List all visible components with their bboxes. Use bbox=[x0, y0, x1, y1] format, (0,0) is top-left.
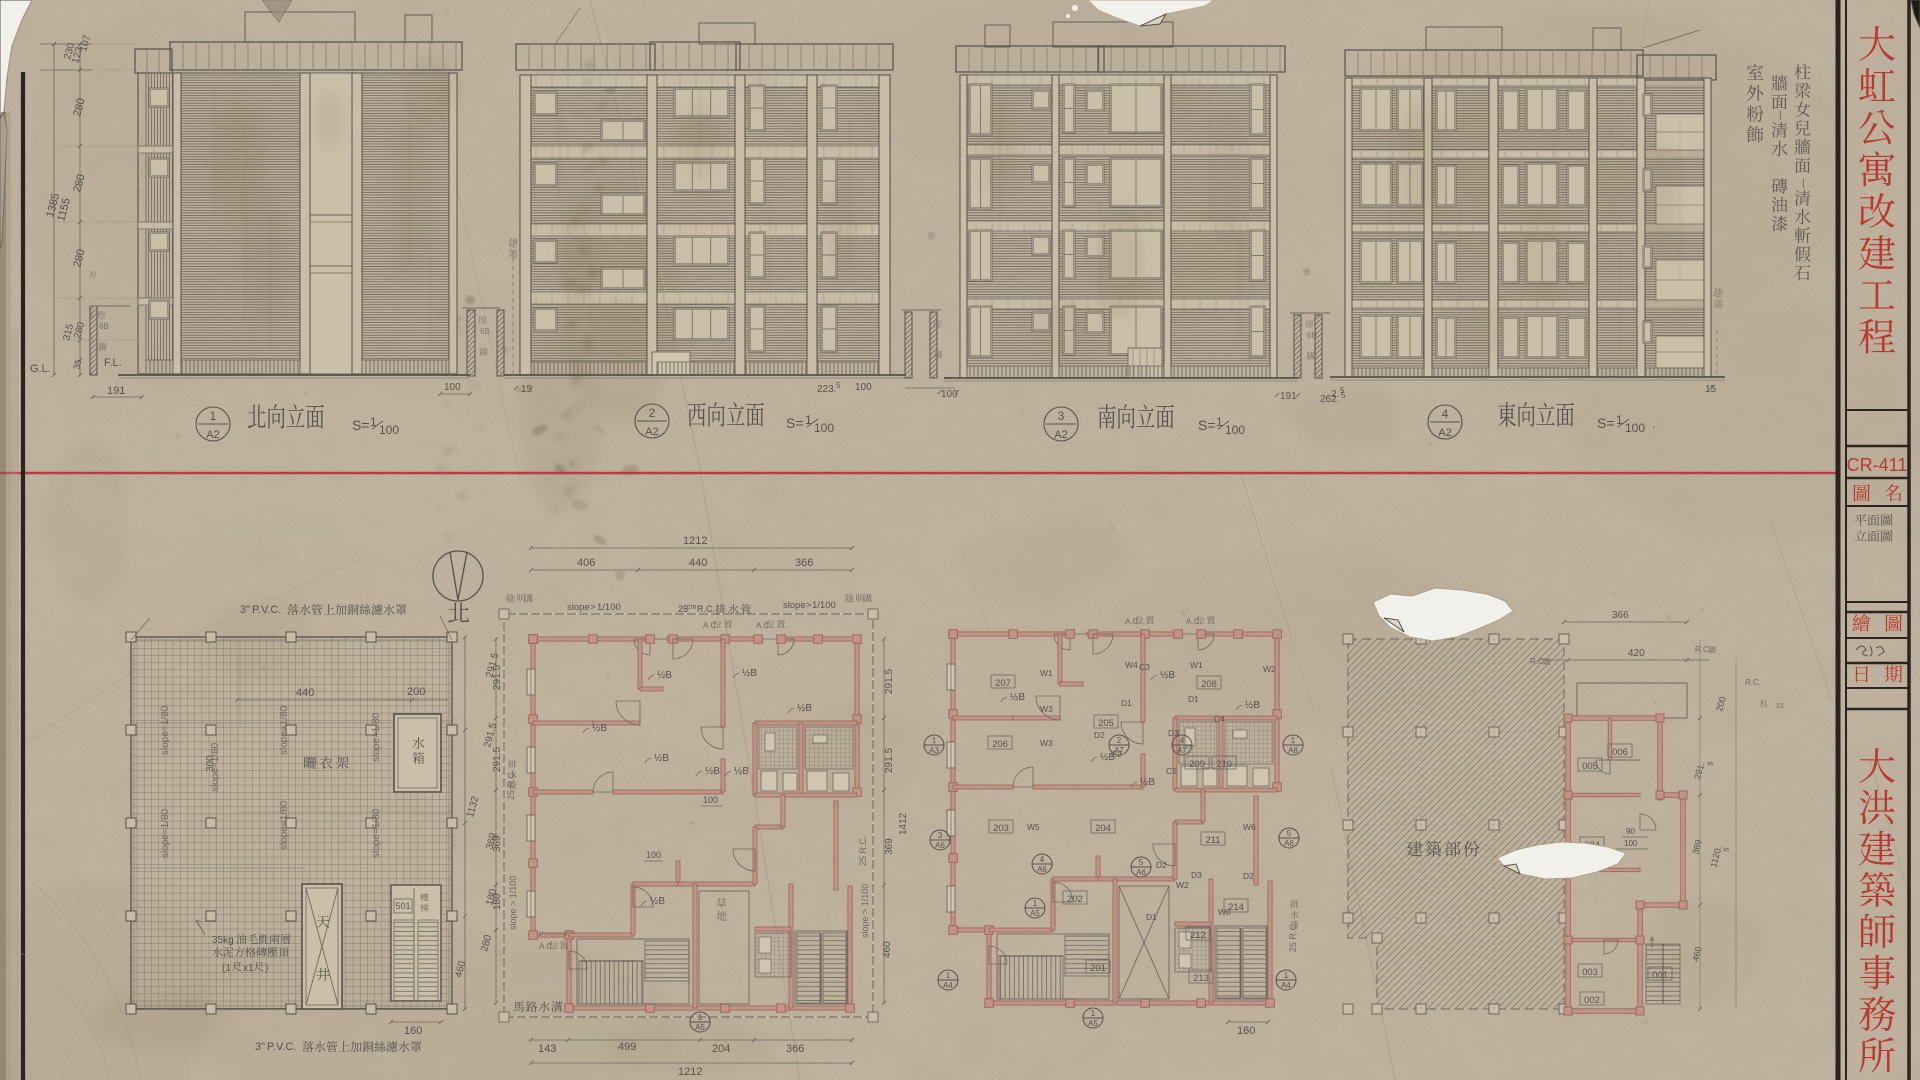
svg-text:1: 1 bbox=[1291, 736, 1296, 745]
svg-text:205: 205 bbox=[1098, 718, 1114, 729]
svg-text:A6: A6 bbox=[1284, 839, 1294, 848]
svg-text:15: 15 bbox=[1776, 703, 1784, 710]
svg-text:W2: W2 bbox=[1263, 664, 1276, 674]
svg-text:S=: S= bbox=[1198, 417, 1216, 433]
svg-text:100: 100 bbox=[814, 421, 834, 435]
svg-text:369: 369 bbox=[884, 838, 895, 855]
svg-text:A4: A4 bbox=[1281, 981, 1291, 990]
svg-text:D2: D2 bbox=[1156, 860, 1167, 870]
svg-text:2: 2 bbox=[1117, 736, 1122, 745]
svg-text:W5: W5 bbox=[1027, 822, 1040, 832]
svg-text:90: 90 bbox=[1626, 827, 1635, 836]
svg-text:1: 1 bbox=[210, 409, 217, 423]
svg-text:slope > 1/100: slope > 1/100 bbox=[508, 876, 518, 930]
svg-text:D3: D3 bbox=[1191, 870, 1202, 880]
svg-text:209: 209 bbox=[1189, 759, 1205, 770]
svg-text:>: > bbox=[590, 602, 596, 613]
svg-text:1/100: 1/100 bbox=[597, 602, 621, 613]
svg-text:C4: C4 bbox=[1214, 714, 1225, 724]
svg-text:A.C.: A.C. bbox=[756, 621, 772, 630]
svg-text:W8: W8 bbox=[1218, 907, 1231, 917]
svg-text:½B: ½B bbox=[650, 896, 665, 907]
svg-text:G.L.: G.L. bbox=[30, 363, 51, 375]
svg-text:002: 002 bbox=[1584, 995, 1600, 1006]
svg-text:1212: 1212 bbox=[683, 535, 707, 547]
svg-text:1: 1 bbox=[805, 413, 812, 427]
svg-text:100: 100 bbox=[941, 389, 958, 400]
svg-text:4: 4 bbox=[1442, 407, 1449, 421]
svg-text:A6: A6 bbox=[1037, 865, 1047, 874]
svg-text:D2: D2 bbox=[1243, 871, 1254, 881]
svg-text:½B: ½B bbox=[1010, 692, 1025, 703]
svg-text:A.C.: A.C. bbox=[539, 942, 555, 951]
svg-text:100: 100 bbox=[646, 850, 661, 860]
svg-text:½B: ½B bbox=[1140, 777, 1155, 788]
svg-text:5: 5 bbox=[1139, 858, 1144, 867]
svg-text:100: 100 bbox=[379, 423, 399, 437]
svg-text:25 R.C.: 25 R.C. bbox=[858, 835, 868, 866]
svg-text:213: 213 bbox=[1193, 973, 1209, 984]
svg-text:212: 212 bbox=[1190, 930, 1206, 941]
svg-text:A.C.: A.C. bbox=[1186, 617, 1202, 626]
svg-text:cm: cm bbox=[687, 604, 697, 611]
svg-text:A5: A5 bbox=[695, 1023, 705, 1032]
svg-text:D1: D1 bbox=[1188, 694, 1199, 704]
svg-text:291.5: 291.5 bbox=[492, 747, 503, 772]
svg-text:003: 003 bbox=[1582, 967, 1598, 978]
svg-text:½B: ½B bbox=[742, 668, 757, 679]
svg-text:6B: 6B bbox=[1307, 331, 1317, 340]
svg-text:1: 1 bbox=[1216, 415, 1223, 429]
svg-text:): ) bbox=[265, 963, 268, 974]
svg-text:|: | bbox=[1802, 178, 1805, 189]
svg-text:3": 3" bbox=[240, 604, 250, 616]
svg-text:203: 203 bbox=[993, 823, 1009, 834]
svg-text:366: 366 bbox=[786, 1043, 804, 1055]
svg-text:5: 5 bbox=[1287, 829, 1292, 838]
svg-text:1: 1 bbox=[1284, 971, 1289, 980]
svg-text:½B: ½B bbox=[705, 766, 720, 777]
svg-text:160: 160 bbox=[1237, 1025, 1255, 1037]
svg-text:P.V.C.: P.V.C. bbox=[267, 1041, 296, 1053]
svg-text:1: 1 bbox=[1616, 413, 1623, 427]
svg-text:35kg: 35kg bbox=[212, 935, 234, 946]
svg-text:A3: A3 bbox=[929, 746, 939, 755]
svg-text:291.5: 291.5 bbox=[884, 748, 895, 773]
svg-text:slope=1/80: slope=1/80 bbox=[371, 712, 382, 762]
svg-text:D1: D1 bbox=[1121, 698, 1132, 708]
svg-text:191: 191 bbox=[1280, 391, 1297, 402]
svg-text:366: 366 bbox=[795, 557, 813, 569]
svg-text:201: 201 bbox=[1090, 963, 1106, 974]
svg-text:3: 3 bbox=[1058, 409, 1065, 423]
svg-text:5: 5 bbox=[836, 381, 841, 390]
svg-text:A6: A6 bbox=[1136, 868, 1146, 877]
svg-text:R.C.: R.C. bbox=[1695, 645, 1711, 654]
svg-text:F.L.: F.L. bbox=[104, 357, 122, 369]
svg-text:W6: W6 bbox=[1243, 822, 1256, 832]
svg-text:½B: ½B bbox=[654, 753, 669, 764]
svg-text:slope=1/80: slope=1/80 bbox=[371, 808, 382, 858]
svg-text:A4: A4 bbox=[943, 981, 953, 990]
svg-text:005: 005 bbox=[1582, 761, 1598, 772]
svg-text:208: 208 bbox=[1201, 679, 1217, 690]
svg-text:369: 369 bbox=[492, 835, 503, 852]
svg-text:W4: W4 bbox=[1125, 660, 1138, 670]
svg-text:100: 100 bbox=[1625, 421, 1645, 435]
svg-text:191: 191 bbox=[107, 385, 125, 397]
svg-text:2: 2 bbox=[649, 406, 656, 420]
svg-text:A2: A2 bbox=[1438, 427, 1451, 439]
svg-text:A7: A7 bbox=[1114, 746, 1124, 755]
svg-text:211: 211 bbox=[1205, 835, 1220, 846]
svg-text:W1: W1 bbox=[1040, 668, 1053, 678]
svg-text:499: 499 bbox=[618, 1041, 636, 1053]
svg-text:2.: 2. bbox=[1331, 389, 1339, 400]
svg-text:440: 440 bbox=[689, 557, 707, 569]
svg-text:x1: x1 bbox=[243, 963, 254, 974]
svg-text:1: 1 bbox=[1033, 899, 1038, 908]
svg-text:C3: C3 bbox=[1139, 662, 1150, 672]
svg-text:slope=1/80: slope=1/80 bbox=[160, 808, 171, 858]
svg-text:300: 300 bbox=[205, 755, 216, 772]
svg-text:440: 440 bbox=[296, 687, 314, 699]
svg-text:A2: A2 bbox=[1054, 429, 1067, 441]
svg-text:½B: ½B bbox=[1160, 670, 1175, 681]
svg-text:S=: S= bbox=[1597, 415, 1615, 431]
svg-text:½B: ½B bbox=[657, 670, 672, 681]
svg-text:100: 100 bbox=[1225, 423, 1245, 437]
svg-text:slope=1/80: slope=1/80 bbox=[160, 705, 171, 755]
svg-text:4: 4 bbox=[1040, 855, 1045, 864]
svg-text:366: 366 bbox=[1612, 610, 1629, 621]
svg-text:180: 180 bbox=[492, 893, 503, 910]
svg-text:½B: ½B bbox=[734, 766, 749, 777]
svg-text:½B: ½B bbox=[797, 703, 812, 714]
svg-text:P.V.C.: P.V.C. bbox=[252, 604, 281, 616]
svg-text:W1: W1 bbox=[1190, 660, 1203, 670]
svg-text:291.5: 291.5 bbox=[492, 665, 503, 690]
svg-text:143: 143 bbox=[538, 1043, 556, 1055]
svg-text:W3: W3 bbox=[1040, 704, 1053, 714]
svg-text:1: 1 bbox=[932, 736, 937, 745]
svg-text:1212: 1212 bbox=[678, 1066, 702, 1078]
svg-text:291.5: 291.5 bbox=[884, 669, 895, 694]
svg-text:420: 420 bbox=[1628, 648, 1645, 659]
svg-text:6B: 6B bbox=[99, 322, 109, 331]
svg-text:1/100: 1/100 bbox=[812, 600, 836, 611]
svg-text:206: 206 bbox=[992, 739, 1008, 750]
svg-text:C5: C5 bbox=[1166, 766, 1177, 776]
svg-text:R.C.: R.C. bbox=[697, 604, 715, 614]
svg-text:slope: slope bbox=[783, 600, 806, 611]
svg-text:4: 4 bbox=[1180, 736, 1185, 745]
svg-text:A7: A7 bbox=[1177, 746, 1187, 755]
svg-text:15: 15 bbox=[521, 384, 533, 395]
svg-text:006: 006 bbox=[1612, 747, 1628, 758]
svg-text:100: 100 bbox=[703, 795, 718, 805]
svg-text:R.C.: R.C. bbox=[1530, 657, 1546, 666]
svg-text:1: 1 bbox=[698, 1013, 703, 1022]
svg-text:A5: A5 bbox=[1088, 1019, 1098, 1028]
svg-text:1: 1 bbox=[370, 415, 377, 429]
svg-text:1412: 1412 bbox=[898, 812, 909, 835]
svg-text:204: 204 bbox=[1095, 823, 1111, 834]
svg-text:A.C.: A.C. bbox=[703, 621, 719, 630]
svg-text:1: 1 bbox=[946, 971, 951, 980]
svg-text:slope=1/80: slope=1/80 bbox=[279, 800, 290, 850]
svg-text:A6: A6 bbox=[935, 841, 945, 850]
svg-text:1: 1 bbox=[1091, 1009, 1096, 1018]
svg-text:501: 501 bbox=[395, 901, 410, 911]
svg-text:D1: D1 bbox=[1146, 912, 1157, 922]
svg-text:A5: A5 bbox=[1030, 909, 1040, 918]
svg-text:slope > 1/100: slope > 1/100 bbox=[860, 884, 870, 938]
svg-text:slope=1/80: slope=1/80 bbox=[279, 705, 290, 755]
svg-text:R.C.: R.C. bbox=[1745, 678, 1761, 687]
svg-text:A.C.: A.C. bbox=[1125, 617, 1141, 626]
svg-text:223.: 223. bbox=[817, 384, 836, 395]
svg-text:406: 406 bbox=[577, 557, 595, 569]
svg-text:S=: S= bbox=[786, 415, 804, 431]
svg-text:A8: A8 bbox=[1288, 746, 1298, 755]
svg-text:A2: A2 bbox=[206, 429, 219, 441]
svg-text:460: 460 bbox=[882, 941, 893, 958]
svg-text:210: 210 bbox=[1216, 759, 1232, 770]
svg-text:207: 207 bbox=[995, 678, 1011, 689]
svg-text:.: . bbox=[1652, 417, 1655, 431]
svg-text:204: 204 bbox=[712, 1043, 730, 1055]
svg-text:CR-411: CR-411 bbox=[1847, 455, 1908, 475]
svg-text:slope: slope bbox=[567, 602, 590, 613]
svg-text:|: | bbox=[1779, 110, 1782, 121]
svg-text:202: 202 bbox=[1067, 894, 1083, 905]
svg-text:D2: D2 bbox=[1094, 730, 1105, 740]
svg-text:160: 160 bbox=[404, 1025, 422, 1037]
svg-text:W3: W3 bbox=[1040, 738, 1053, 748]
svg-text:100: 100 bbox=[1624, 839, 1638, 848]
svg-text:6B: 6B bbox=[480, 327, 490, 336]
svg-text:200: 200 bbox=[407, 686, 425, 698]
svg-text:100: 100 bbox=[444, 382, 461, 393]
svg-text:½B: ½B bbox=[1245, 700, 1260, 711]
svg-text:S=: S= bbox=[352, 417, 370, 433]
svg-text:5: 5 bbox=[1340, 386, 1345, 395]
svg-text:½B: ½B bbox=[592, 723, 607, 734]
svg-text:W2: W2 bbox=[1176, 880, 1189, 890]
svg-text:(1: (1 bbox=[222, 963, 231, 974]
svg-text:A2: A2 bbox=[645, 426, 658, 438]
svg-text:3": 3" bbox=[255, 1041, 265, 1053]
svg-text:15: 15 bbox=[1705, 384, 1717, 395]
svg-text:100: 100 bbox=[855, 382, 872, 393]
svg-text:3: 3 bbox=[938, 831, 943, 840]
